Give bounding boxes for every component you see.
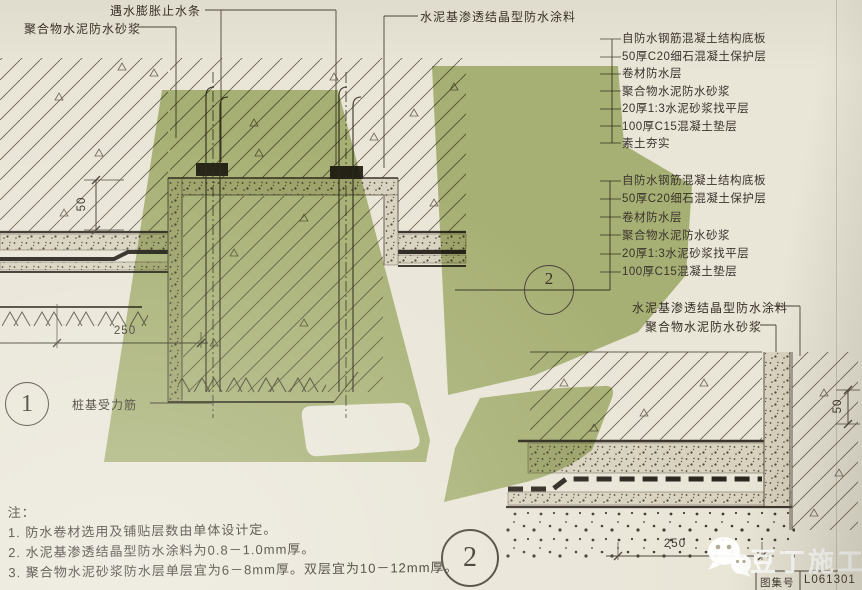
wechat-icon [700,530,756,582]
layer-item: 聚合物水泥防水砂浆 [622,227,766,245]
label-crystalline-coating-top: 水泥基渗透结晶型防水涂料 [420,8,576,25]
detail-1-marker: 1 [5,382,49,426]
label-pile-rebar: 桩基受力筋 [72,396,137,413]
layer-item: 100厚C15混凝土垫层 [622,119,766,137]
notes-block: 注： 1. 防水卷材选用及铺贴层数由单体设计定。 2. 水泥基渗透结晶型防水涂料… [8,497,529,583]
layer-item: 20厚1:3水泥砂浆找平层 [622,245,766,263]
detail-1-number: 1 [21,391,33,418]
layer-item: 卷材防水层 [622,66,766,84]
layer-item: 自防水钢筋混凝土结构底板 [622,31,766,49]
scanned-drawing-page: 聚合物水泥防水砂浆 遇水膨胀止水条 水泥基渗透结晶型防水涂料 自防水钢筋混凝土结… [0,0,862,590]
dim-50-right: 50 [832,386,844,426]
dim-50-left: 50 [76,184,88,224]
label-crystalline-coating-side: 水泥基渗透结晶型防水涂料 [632,299,788,316]
layer-callout-list-bottom: 自防水钢筋混凝土结构底板 50厚C20细石混凝土保护层 卷材防水层 聚合物水泥防… [622,172,766,282]
section-reference-bubble: 2 [524,265,574,315]
layer-item: 100厚C15混凝土垫层 [622,263,766,281]
page-crease [836,0,837,590]
label-polymer-mortar-side: 聚合物水泥防水砂浆 [645,318,762,335]
layer-item: 卷材防水层 [622,209,766,227]
layer-item: 50厚C20细石混凝土保护层 [622,49,766,67]
label-polymer-mortar-top: 聚合物水泥防水砂浆 [24,20,141,37]
dim-250-left: 250 [95,325,155,337]
layer-item: 素土夯实 [622,136,766,154]
atlas-number-label: 图集号 [760,575,795,590]
layer-item: 自防水钢筋混凝土结构底板 [622,172,766,190]
dim-250-right: 250 [650,538,700,550]
layer-callout-list-top: 自防水钢筋混凝土结构底板 50厚C20细石混凝土保护层 卷材防水层 聚合物水泥防… [622,31,766,154]
label-waterstop: 遇水膨胀止水条 [110,2,201,19]
layer-item: 50厚C20细石混凝土保护层 [622,190,766,208]
section-reference-number: 2 [545,269,554,289]
layer-item: 20厚1:3水泥砂浆找平层 [622,101,766,119]
layer-item: 聚合物水泥防水砂浆 [622,84,766,102]
atlas-number-value: L061301 [804,574,856,586]
